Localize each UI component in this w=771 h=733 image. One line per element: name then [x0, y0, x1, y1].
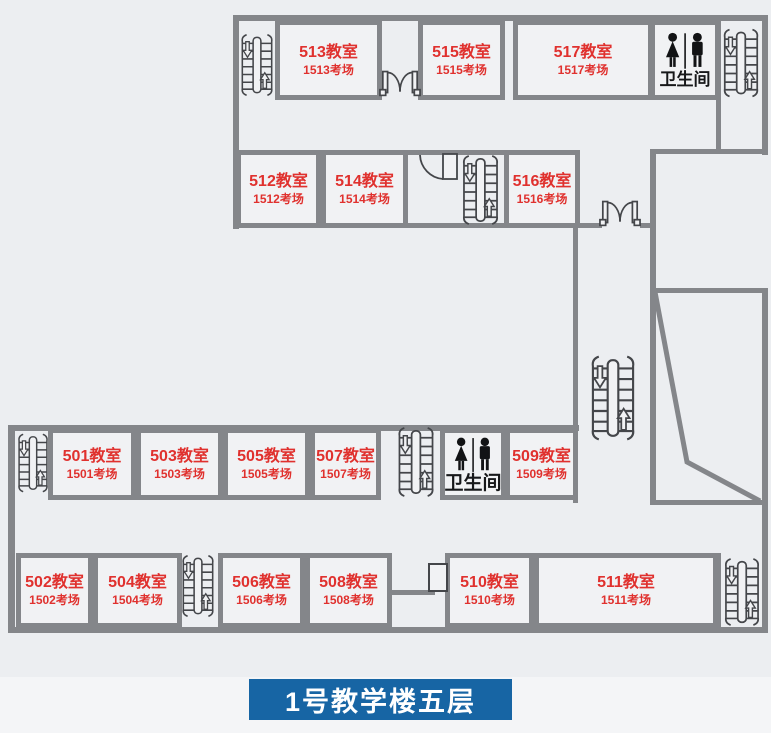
stairs-icon	[238, 32, 276, 98]
room-label: 517教室	[554, 45, 613, 61]
exam-label: 1509考场	[516, 468, 567, 480]
room-510: 510教室 1510考场	[445, 553, 534, 628]
room-label: 512教室	[249, 174, 308, 190]
room-504: 504教室 1504考场	[93, 553, 182, 628]
exam-label: 1508考场	[323, 594, 374, 606]
restroom-label: 卫生间	[445, 474, 502, 493]
wall-segment	[650, 149, 768, 154]
room-label: 511教室	[597, 575, 655, 591]
wall-segment	[391, 590, 435, 595]
room-label: 505教室	[237, 449, 296, 465]
room-label: 507教室	[316, 449, 375, 465]
room-501: 501教室 1501考场	[48, 428, 136, 500]
floor-title: 1号教学楼五层	[285, 680, 476, 719]
room-502: 502教室 1502考场	[16, 553, 93, 628]
exam-label: 1504考场	[112, 594, 163, 606]
exam-label: 1501考场	[67, 468, 118, 480]
floor-plan: 513教室 1513考场 515教室 1515考场 517教室 1517考场 卫…	[0, 0, 771, 733]
room-label: 510教室	[460, 575, 519, 591]
room-label: 508教室	[319, 575, 378, 591]
double-door-icon	[379, 68, 421, 98]
exam-label: 1510考场	[464, 594, 515, 606]
exam-label: 1517考场	[558, 64, 609, 76]
stairs-icon	[15, 429, 51, 497]
stairs-icon	[179, 546, 217, 626]
room-517: 517教室 1517考场	[513, 20, 653, 100]
room-503: 503教室 1503考场	[136, 428, 223, 500]
exam-label: 1515考场	[436, 64, 487, 76]
room-label: 503教室	[150, 449, 209, 465]
room-505: 505教室 1505考场	[223, 428, 310, 500]
exam-label: 1513考场	[303, 64, 354, 76]
exam-label: 1507考场	[320, 468, 371, 480]
exam-label: 1503考场	[154, 468, 205, 480]
exam-label: 1505考场	[241, 468, 292, 480]
exam-label: 1511考场	[601, 594, 651, 606]
room-label: 509教室	[512, 449, 571, 465]
room-512: 512教室 1512考场	[236, 150, 321, 228]
room-513: 513教室 1513考场	[275, 20, 382, 100]
restroom-icon	[662, 32, 708, 70]
room-label: 504教室	[108, 575, 167, 591]
wall-segment	[650, 500, 768, 505]
exam-label: 1506考场	[236, 594, 287, 606]
room-label: 514教室	[335, 174, 394, 190]
room-label: 506教室	[232, 575, 291, 591]
stairs-icon	[720, 26, 762, 100]
room-511: 511教室 1511考场	[534, 553, 718, 628]
restroom-middle: 卫生间	[440, 428, 506, 500]
room-509: 509教室 1509考场	[505, 428, 578, 500]
room-507: 507教室 1507考场	[310, 428, 381, 500]
stairs-icon	[391, 427, 441, 497]
double-door-icon	[599, 199, 641, 227]
exam-label: 1514考场	[339, 193, 390, 205]
wall-segment	[8, 425, 15, 633]
room-516: 516教室 1516考场	[504, 150, 580, 228]
diagonal-wall	[655, 292, 760, 501]
room-506: 506教室 1506考场	[218, 553, 305, 628]
room-515: 515教室 1515考场	[418, 20, 505, 100]
room-label: 502教室	[25, 575, 84, 591]
wall-segment	[650, 149, 656, 505]
exam-label: 1502考场	[29, 594, 80, 606]
exam-label: 1512考场	[253, 193, 304, 205]
exam-label: 1516考场	[517, 193, 568, 205]
door-icon	[420, 154, 457, 179]
wall-segment	[650, 288, 768, 293]
restroom-label: 卫生间	[660, 71, 711, 88]
stairs-icon	[458, 155, 503, 225]
room-label: 515教室	[432, 45, 491, 61]
room-label: 516教室	[513, 174, 572, 190]
stairs-icon	[721, 558, 763, 626]
room-514: 514教室 1514考场	[321, 150, 408, 228]
room-label: 501教室	[63, 449, 122, 465]
title-box: 1号教学楼五层	[249, 679, 512, 720]
restroom-top: 卫生间	[650, 20, 720, 100]
room-508: 508教室 1508考场	[305, 553, 392, 628]
room-label: 513教室	[299, 45, 358, 61]
wall-segment	[762, 15, 768, 155]
stairs-icon	[587, 343, 639, 453]
restroom-icon	[451, 437, 495, 473]
